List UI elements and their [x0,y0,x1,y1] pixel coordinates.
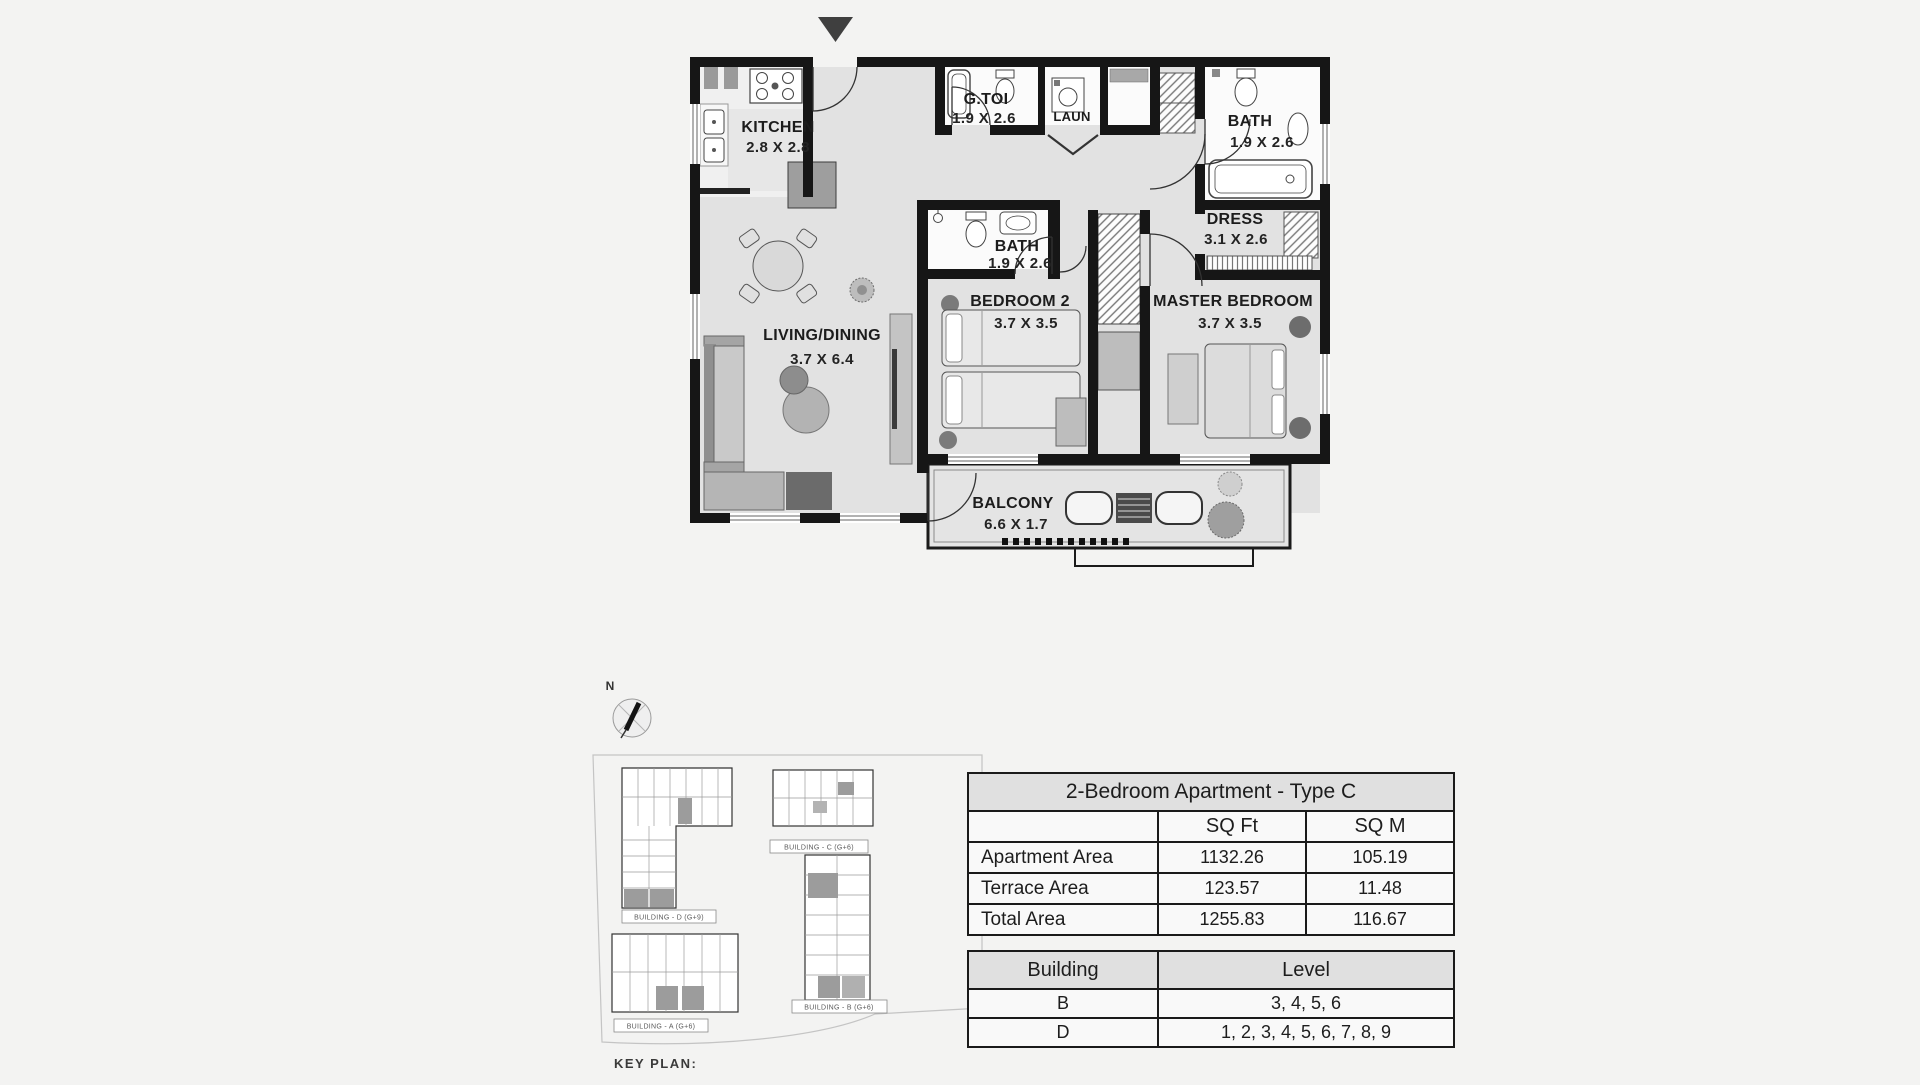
room-label-guest-toilet: G.TOI [964,91,1009,108]
terrace-area-label: Terrace Area [968,873,1158,904]
key-plan-building-d [622,768,732,908]
key-plan-building-c [773,770,873,826]
table-row: B 3, 4, 5, 6 [968,989,1454,1018]
plant-icon [1218,472,1242,496]
building-b-cell: B [968,989,1158,1018]
area-table-header-row: SQ Ft SQ M [968,811,1454,842]
building-d-levels: 1, 2, 3, 4, 5, 6, 7, 8, 9 [1158,1018,1454,1047]
floor-plan: KITCHEN 2.8 X 2.8 G.TOI 1.9 X 2.6 LAUN B… [690,14,1340,570]
building-b-levels: 3, 4, 5, 6 [1158,989,1454,1018]
room-dims-bedroom2: 3.7 X 3.5 [994,315,1058,332]
room-dims-dress: 3.1 X 2.6 [1204,231,1268,248]
key-plan-building-a [612,934,738,1012]
room-label-balcony: BALCONY [972,495,1053,512]
compass-icon: N [606,679,651,738]
apartment-area-label: Apartment Area [968,842,1158,873]
room-label-bedroom2: BEDROOM 2 [970,293,1070,310]
balcony-area [928,464,1290,566]
room-label-bath-top: BATH [1228,113,1272,130]
total-area-sqft: 1255.83 [1158,904,1306,935]
key-plan-building-b [805,855,870,1000]
apartment-area-sqft: 1132.26 [1158,842,1306,873]
svg-text:BUILDING - B (G+6): BUILDING - B (G+6) [804,1005,873,1012]
area-table-blank-header [968,811,1158,842]
room-dims-guest-toilet: 1.9 X 2.6 [952,110,1016,127]
level-col-header: Level [1158,951,1454,989]
key-plan: N [580,670,1000,1080]
area-table-title-row: 2-Bedroom Apartment - Type C [968,773,1454,811]
building-level-table: Building Level B 3, 4, 5, 6 D 1, 2, 3, 4… [967,950,1455,1048]
room-dims-living-dining: 3.7 X 6.4 [790,351,854,368]
area-table-title: 2-Bedroom Apartment - Type C [968,773,1454,811]
total-area-label: Total Area [968,904,1158,935]
plant-icon [1208,502,1244,538]
floor-plan-sheet: KITCHEN 2.8 X 2.8 G.TOI 1.9 X 2.6 LAUN B… [0,0,1920,1080]
table-row: D 1, 2, 3, 4, 5, 6, 7, 8, 9 [968,1018,1454,1047]
table-row: Total Area 1255.83 116.67 [968,904,1454,935]
building-table-header-row: Building Level [968,951,1454,989]
area-table-col-sqft: SQ Ft [1158,811,1306,842]
key-plan-title: KEY PLAN: [614,1056,697,1071]
room-label-bath-mid: BATH [995,238,1039,255]
building-d-cell: D [968,1018,1158,1047]
terrace-area-sqm: 11.48 [1306,873,1454,904]
apartment-area-sqm: 105.19 [1306,842,1454,873]
room-label-laundry: LAUN [1053,109,1090,124]
table-row: Terrace Area 123.57 11.48 [968,873,1454,904]
room-label-living-dining: LIVING/DINING [763,327,881,344]
building-col-header: Building [968,951,1158,989]
room-dims-master-bedroom: 3.7 X 3.5 [1198,315,1262,332]
area-table: 2-Bedroom Apartment - Type C SQ Ft SQ M … [967,772,1455,936]
terrace-area-sqft: 123.57 [1158,873,1306,904]
total-area-sqm: 116.67 [1306,904,1454,935]
room-label-kitchen: KITCHEN [741,119,814,136]
room-dims-bath-top: 1.9 X 2.6 [1230,134,1294,151]
room-dims-balcony: 6.6 X 1.7 [984,516,1048,533]
room-label-dress: DRESS [1207,211,1264,228]
svg-text:BUILDING - D (G+9): BUILDING - D (G+9) [634,915,704,922]
svg-text:BUILDING - C (G+6): BUILDING - C (G+6) [784,845,854,852]
room-label-master-bedroom: MASTER BEDROOM [1153,293,1313,310]
room-dims-bath-mid: 1.9 X 2.6 [988,255,1052,272]
svg-text:BUILDING - A (G+6): BUILDING - A (G+6) [627,1024,696,1031]
table-row: Apartment Area 1132.26 105.19 [968,842,1454,873]
svg-text:N: N [606,679,615,693]
entrance-arrow-icon [818,17,853,42]
room-dims-kitchen: 2.8 X 2.8 [746,139,810,156]
area-table-col-sqm: SQ M [1306,811,1454,842]
